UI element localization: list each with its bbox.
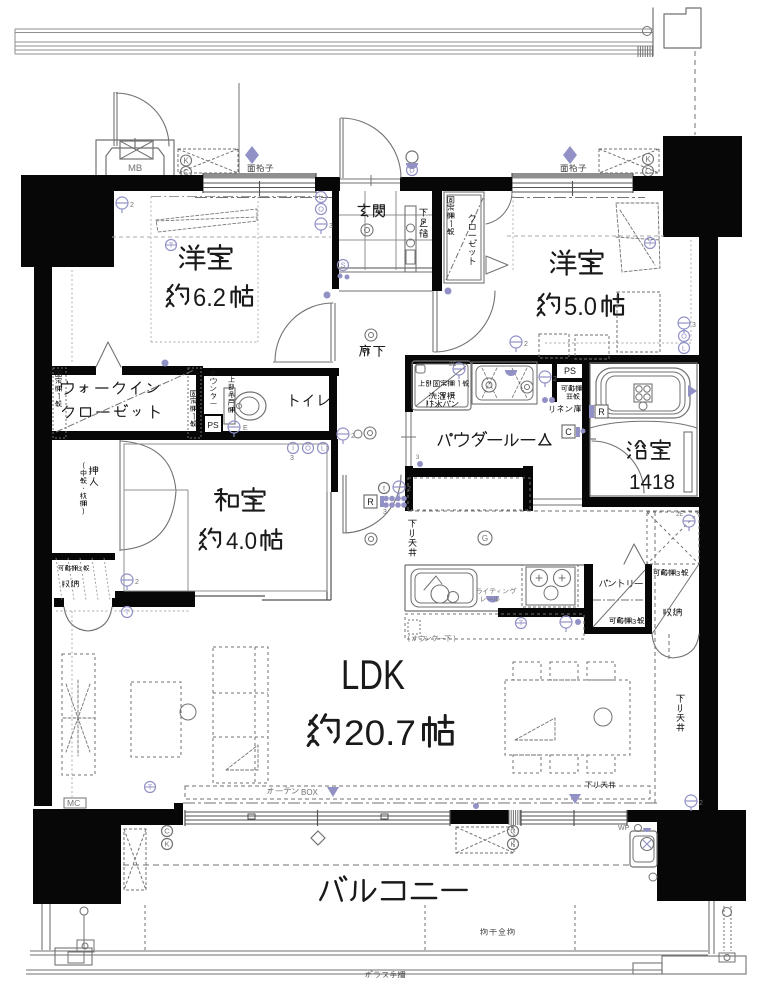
svg-text:O: O [681,332,687,341]
svg-text:3: 3 [290,455,294,462]
svg-text:L: L [319,193,323,202]
svg-text:K: K [164,840,169,849]
svg-text:O: O [318,205,324,214]
svg-text:S: S [340,261,345,270]
svg-text:MB: MB [128,163,142,174]
svg-text:3: 3 [78,566,82,573]
svg-text:C: C [565,427,572,437]
svg-text:1418: 1418 [629,471,675,494]
svg-text:PS: PS [207,420,219,430]
svg-text:C: C [645,167,651,176]
svg-text:2: 2 [130,202,134,209]
svg-text:L: L [682,344,686,353]
svg-text:G: G [482,534,488,543]
svg-text:LDK: LDK [341,651,405,698]
svg-text:2E: 2E [676,512,683,518]
svg-text:3: 3 [676,569,680,578]
svg-text:2E: 2E [449,362,456,368]
svg-text:O: O [305,444,311,453]
svg-text:BOX: BOX [301,788,319,797]
svg-text:20.7: 20.7 [344,714,416,753]
svg-text:WP: WP [618,825,630,832]
svg-text:K: K [183,157,189,166]
svg-text:K: K [510,840,515,849]
svg-text:3: 3 [692,322,696,329]
svg-text:E: E [243,425,248,432]
svg-text:3: 3 [383,509,387,516]
svg-text:T: T [125,608,130,617]
svg-text:5.0: 5.0 [564,293,597,321]
svg-text:C: C [510,827,516,836]
svg-text:3: 3 [329,223,333,230]
svg-text:K: K [645,155,651,164]
svg-text:6.2: 6.2 [193,284,226,312]
svg-text:PS: PS [564,366,576,376]
svg-text:MC: MC [67,798,80,808]
svg-text:2: 2 [135,579,139,586]
svg-text:R: R [598,407,605,417]
svg-text:2: 2 [553,376,557,383]
svg-text:3: 3 [632,617,636,626]
svg-text:2: 2 [407,486,411,493]
svg-text:2: 2 [699,800,703,807]
svg-text:R: R [367,497,374,507]
svg-text:C: C [164,827,170,836]
svg-text:2: 2 [524,341,528,348]
svg-text:I: I [292,444,294,453]
svg-text:4.0: 4.0 [226,528,257,555]
svg-text:L: L [321,444,325,453]
